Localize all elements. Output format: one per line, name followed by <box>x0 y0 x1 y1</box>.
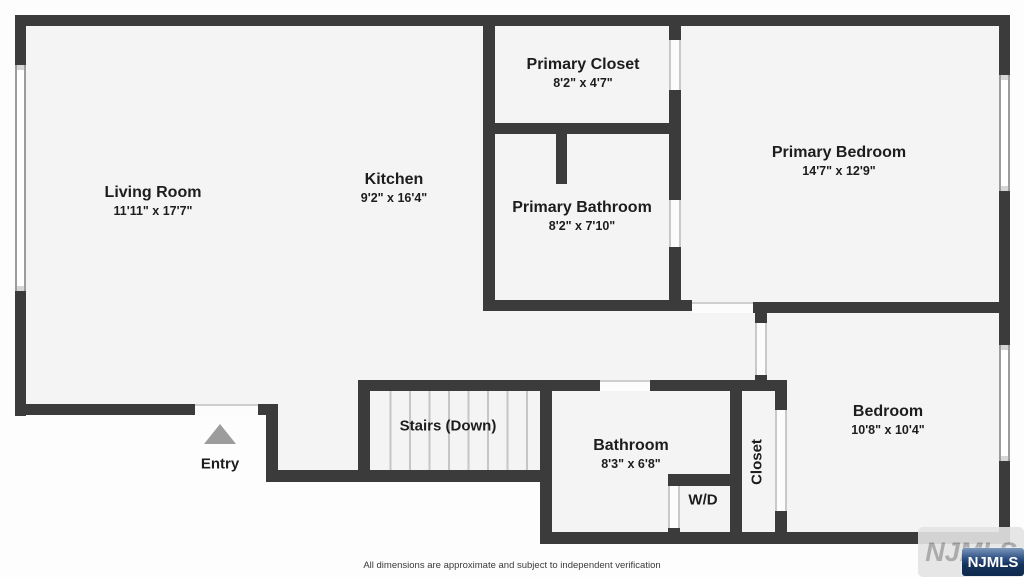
wall <box>483 15 495 311</box>
wall <box>540 380 552 544</box>
window-cap <box>1001 186 1008 191</box>
room-dims: 8'2" x 4'7" <box>527 76 640 92</box>
room-dims: 10'8" x 10'4" <box>851 423 924 439</box>
door-opening-primary-closet <box>669 40 681 90</box>
wall <box>556 134 567 184</box>
closet-text: Closet <box>748 439 765 485</box>
wall <box>668 528 680 544</box>
room-name: Primary Bedroom <box>772 144 906 162</box>
stairs-label: Stairs (Down) <box>400 417 497 434</box>
wall <box>358 380 600 391</box>
room-name: Primary Closet <box>527 56 640 74</box>
wall <box>999 191 1010 345</box>
wall <box>755 375 767 391</box>
wall <box>15 15 1010 26</box>
room-dims: 9'2" x 16'4" <box>361 191 427 207</box>
room-name: Living Room <box>105 184 202 202</box>
room-dims: 8'3" x 6'8" <box>593 457 669 473</box>
window-cap <box>17 65 24 70</box>
wall <box>15 291 26 416</box>
wall <box>483 123 681 134</box>
wall <box>15 15 26 65</box>
window <box>15 65 26 291</box>
door-opening-wd <box>668 486 680 528</box>
room-name: Kitchen <box>361 171 427 189</box>
window-cap <box>1001 345 1008 350</box>
wall <box>266 470 552 482</box>
door-opening-entry <box>195 404 258 415</box>
room-name: Bedroom <box>851 403 924 421</box>
wall <box>358 380 370 482</box>
door-opening-primary-bedroom <box>692 302 753 313</box>
disclaimer-text: All dimensions are approximate and subje… <box>0 560 1024 571</box>
floor-plan: Living Room 11'11" x 17'7" Kitchen 9'2" … <box>0 0 1024 577</box>
door-opening-bathroom <box>600 380 650 391</box>
room-label-bedroom: Bedroom 10'8" x 10'4" <box>851 403 924 439</box>
room-label-primary-closet: Primary Closet 8'2" x 4'7" <box>527 56 640 92</box>
window-cap <box>17 286 24 291</box>
closet-label: Closet <box>748 439 765 485</box>
room-label-living-room: Living Room 11'11" x 17'7" <box>105 184 202 220</box>
entry-label: Entry <box>201 455 239 472</box>
door-opening-bedroom <box>755 323 767 375</box>
njmls-logo-badge: NJMLS <box>962 548 1024 576</box>
wall <box>668 474 742 486</box>
wall <box>730 391 742 544</box>
room-dims: 8'2" x 7'10" <box>512 219 652 235</box>
door-opening-closet <box>775 410 787 511</box>
room-name: Primary Bathroom <box>512 199 652 217</box>
room-name: Bathroom <box>593 437 669 455</box>
door-opening-primary-bathroom <box>669 200 681 247</box>
window-cap <box>1001 456 1008 461</box>
window <box>999 345 1010 461</box>
wall <box>775 391 787 410</box>
wall <box>15 404 195 415</box>
room-dims: 11'11" x 17'7" <box>105 204 202 220</box>
wall <box>999 15 1010 75</box>
wd-label: W/D <box>688 491 717 508</box>
room-label-primary-bedroom: Primary Bedroom 14'7" x 12'9" <box>772 144 906 180</box>
room-dims: 14'7" x 12'9" <box>772 164 906 180</box>
wall <box>669 15 681 40</box>
wall <box>755 313 767 323</box>
entry-text: Entry <box>201 455 239 472</box>
room-label-bathroom: Bathroom 8'3" x 6'8" <box>593 437 669 473</box>
stairs-text: Stairs (Down) <box>400 417 497 434</box>
room-label-kitchen: Kitchen 9'2" x 16'4" <box>361 171 427 207</box>
wall <box>669 90 681 200</box>
window <box>999 75 1010 191</box>
wd-text: W/D <box>688 491 717 508</box>
window-cap <box>1001 75 1008 80</box>
entry-direction-triangle-up-icon <box>204 424 236 444</box>
wall <box>753 302 1010 313</box>
room-label-primary-bathroom: Primary Bathroom 8'2" x 7'10" <box>512 199 652 235</box>
wall <box>483 300 692 311</box>
